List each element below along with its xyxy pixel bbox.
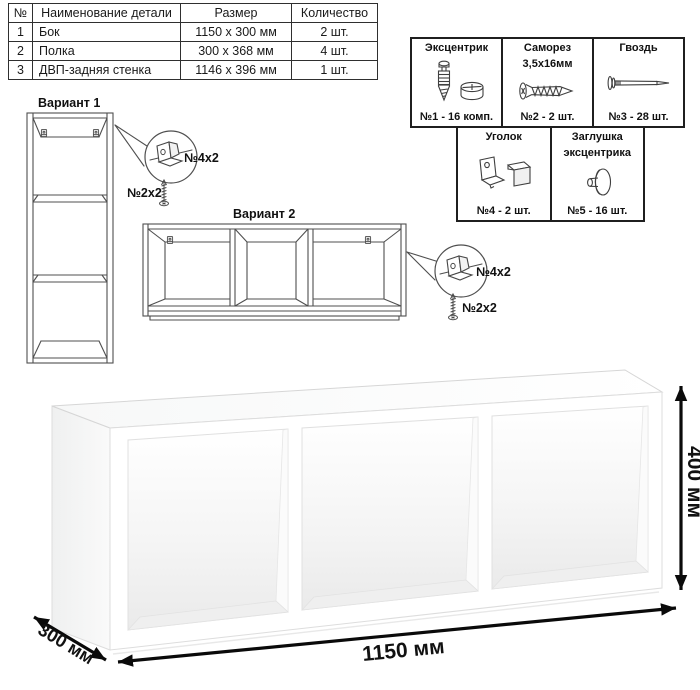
- variant2-title: Вариант 2: [233, 207, 295, 221]
- hardware-item-title: Заглушка: [572, 131, 623, 144]
- callout-screw-label: №2х2: [462, 301, 497, 315]
- part-size: 1150 x 300 мм: [181, 23, 292, 42]
- panel-bracket-mark: [167, 236, 172, 243]
- height-dimension-label: 400 мм: [683, 446, 700, 518]
- shelf-compartment: [302, 417, 478, 610]
- panel-bracket-mark: [41, 129, 46, 136]
- hardware-item-title: Уголок: [486, 131, 522, 144]
- hardware-item-title: Эксцентрик: [425, 42, 488, 55]
- nail-icon: [603, 55, 675, 112]
- col-header-size: Размер: [181, 4, 292, 23]
- hardware-cell-cam-cap: Заглушка эксцентрика №5 - 16 шт.: [552, 128, 644, 220]
- dimension-height: 400 мм: [681, 386, 700, 590]
- panel-bracket-mark: [365, 236, 370, 243]
- hardware-cell-screw: Саморез 3,5х16мм №2 - 2 шт.: [503, 39, 594, 126]
- hardware-item-count: №5 - 16 шт.: [567, 205, 627, 217]
- callout-bracket-label: №4х2: [476, 265, 511, 279]
- cam-cap-icon: [569, 159, 625, 205]
- hardware-item-count: №3 - 28 шт.: [608, 111, 668, 123]
- hardware-item-count: №4 - 2 шт.: [477, 205, 531, 217]
- col-header-qty: Количество: [292, 4, 378, 23]
- shelf-compartment: [492, 406, 648, 589]
- hardware-item-title: Саморез: [524, 42, 571, 55]
- table-row: 3 ДВП-задняя стенка 1146 x 396 мм 1 шт.: [9, 61, 378, 80]
- parts-table-header-row: № Наименование детали Размер Количество: [9, 4, 378, 23]
- hardware-cell-bracket: Уголок №4 - 2 шт.: [458, 128, 552, 220]
- part-size: 300 x 368 мм: [181, 42, 292, 61]
- part-num: 2: [9, 42, 33, 61]
- variant1-drawing: [27, 113, 113, 363]
- hardware-item-count: №1 - 16 комп.: [420, 111, 493, 123]
- col-header-name: Наименование детали: [33, 4, 181, 23]
- hardware-item-subtitle: эксцентрика: [563, 147, 631, 160]
- hardware-item-subtitle: 3,5х16мм: [523, 58, 573, 71]
- part-name: Полка: [33, 42, 181, 61]
- part-qty: 2 шт.: [292, 23, 378, 42]
- variant2-callout: №4х2 №2х2: [407, 245, 511, 320]
- panel-bracket-mark: [93, 129, 98, 136]
- callout-screw-label: №2х2: [127, 186, 162, 200]
- screw-icon: [449, 294, 458, 320]
- bracket-icon: [470, 144, 538, 206]
- parts-table: № Наименование детали Размер Количество …: [8, 3, 378, 80]
- table-row: 1 Бок 1150 x 300 мм 2 шт.: [9, 23, 378, 42]
- shelf-3d-render: [52, 370, 662, 654]
- hardware-box-bottom-row: Уголок №4 - 2 шт. Заглушка эксцентрика: [456, 126, 645, 222]
- variant1-callout: №4х2 №2х2: [115, 125, 219, 206]
- part-qty: 4 шт.: [292, 42, 378, 61]
- screw-icon: [515, 70, 581, 111]
- part-num: 1: [9, 23, 33, 42]
- width-dimension-label: 1150 мм: [361, 635, 445, 666]
- hardware-box-top-row: Эксцентрик №1 - 16 комп.: [410, 37, 685, 128]
- part-qty: 1 шт.: [292, 61, 378, 80]
- hardware-item-title: Гвоздь: [619, 42, 657, 55]
- part-name: ДВП-задняя стенка: [33, 61, 181, 80]
- part-size: 1146 x 396 мм: [181, 61, 292, 80]
- hardware-cell-nail: Гвоздь №3 - 28 шт.: [594, 39, 683, 126]
- cam-bolt-icon: [424, 55, 490, 112]
- variant1-title: Вариант 1: [38, 96, 100, 110]
- part-num: 3: [9, 61, 33, 80]
- hardware-cell-eccentric: Эксцентрик №1 - 16 комп.: [412, 39, 503, 126]
- table-row: 2 Полка 300 x 368 мм 4 шт.: [9, 42, 378, 61]
- col-header-num: №: [9, 4, 33, 23]
- hardware-box: Эксцентрик №1 - 16 комп.: [410, 37, 685, 222]
- part-name: Бок: [33, 23, 181, 42]
- hardware-item-count: №2 - 2 шт.: [521, 111, 575, 123]
- assembly-instruction-sheet: { "parts_table": { "headers": { "num": "…: [0, 0, 700, 690]
- shelf-compartment: [128, 429, 288, 630]
- callout-bracket-label: №4х2: [184, 151, 219, 165]
